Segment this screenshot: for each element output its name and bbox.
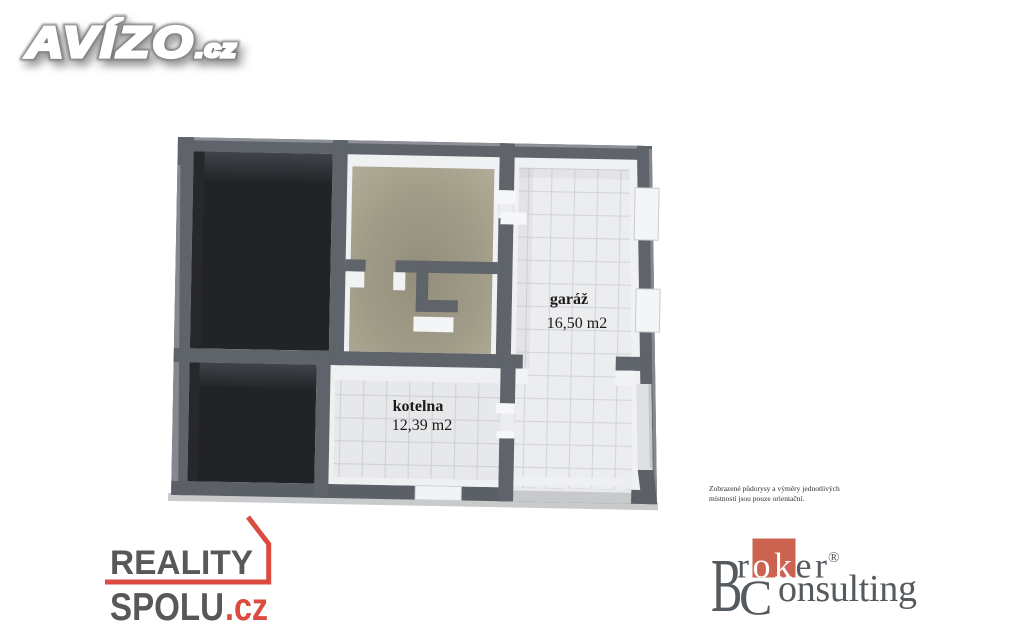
svg-text:kotelna: kotelna — [393, 398, 444, 415]
svg-text:®: ® — [828, 550, 839, 566]
svg-text:garáž: garáž — [550, 291, 588, 308]
svg-text:REALITY: REALITY — [110, 544, 253, 582]
svg-text:.cz: .cz — [225, 586, 268, 629]
svg-text:onsulting: onsulting — [778, 568, 917, 610]
svg-text:12,39 m2: 12,39 m2 — [392, 417, 452, 434]
svg-text:SPOLU: SPOLU — [110, 586, 224, 629]
svg-text:16,50 m2: 16,50 m2 — [547, 315, 607, 332]
svg-text:C: C — [739, 569, 772, 625]
